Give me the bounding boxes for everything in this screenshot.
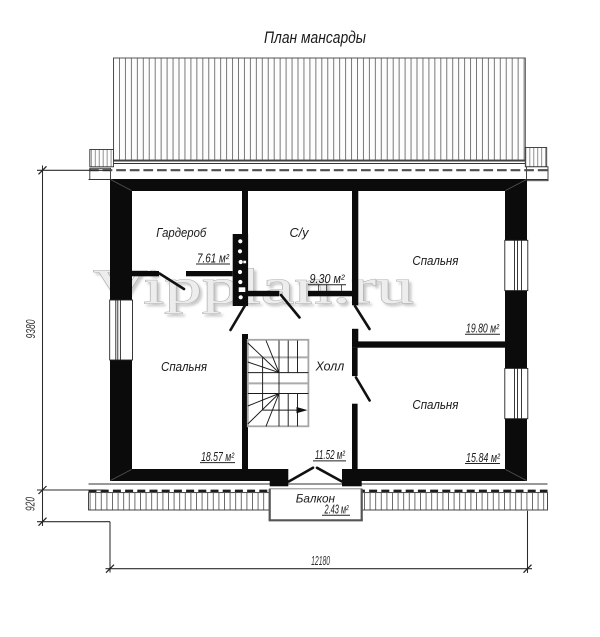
svg-text:План мансарды: План мансарды: [264, 28, 366, 47]
svg-text:Спальня: Спальня: [412, 253, 458, 268]
svg-text:Спальня: Спальня: [412, 397, 458, 412]
svg-text:Vipplan.ru: Vipplan.ru: [93, 258, 414, 314]
svg-text:7.61 м²: 7.61 м²: [197, 252, 230, 266]
svg-text:2.43 м²: 2.43 м²: [324, 503, 349, 517]
svg-text:Спальня: Спальня: [161, 359, 207, 374]
svg-text:С/у: С/у: [290, 225, 310, 240]
svg-text:Гардероб: Гардероб: [156, 225, 207, 240]
svg-text:9380: 9380: [23, 319, 38, 339]
svg-text:9.30 м²: 9.30 м²: [310, 272, 346, 286]
svg-text:Холл: Холл: [315, 359, 345, 374]
svg-text:11.52 м²: 11.52 м²: [315, 448, 346, 462]
svg-text:19.80 м²: 19.80 м²: [466, 322, 500, 336]
svg-text:920: 920: [23, 496, 38, 511]
svg-text:18.57 м²: 18.57 м²: [201, 450, 235, 464]
svg-text:12180: 12180: [311, 553, 330, 568]
svg-text:15.84 м²: 15.84 м²: [466, 451, 501, 465]
